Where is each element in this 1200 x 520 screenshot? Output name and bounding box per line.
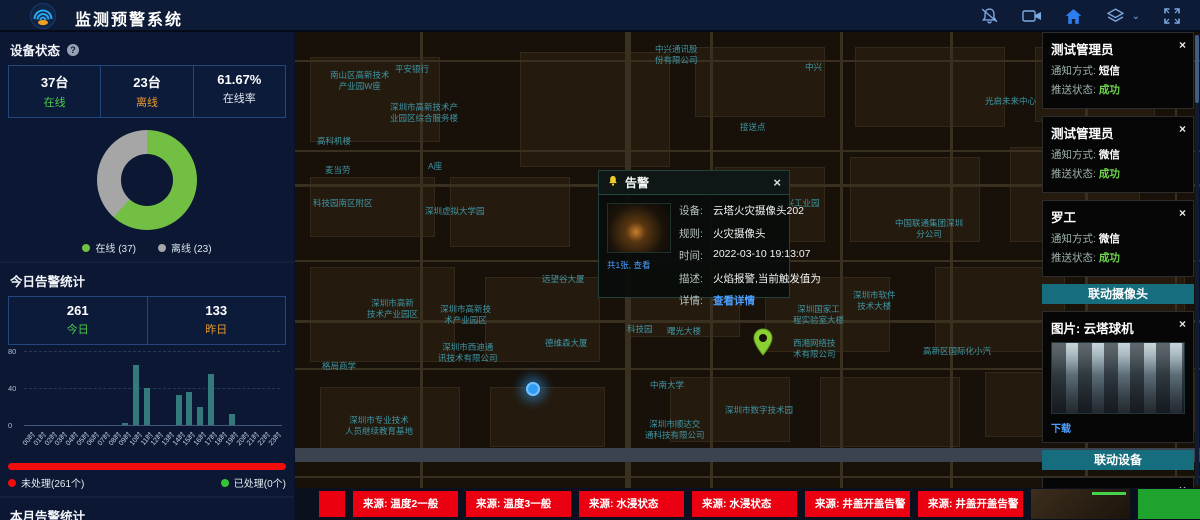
legend-handled: 已处理(0个) <box>221 475 286 490</box>
close-icon[interactable]: × <box>1179 38 1186 52</box>
left-sidebar: 设备状态 ? 37台 在线 23台 离线 61.67% 在线率 在线 (37) … <box>0 32 295 520</box>
device-status-title: 设备状态 <box>10 40 60 59</box>
alert-source-tile[interactable]: 来源: 温度2一般 <box>353 491 458 517</box>
alert-source-tile[interactable]: 来源: 井盖开盖告警 <box>918 491 1023 517</box>
alert-popup: 告警 × 共1张, 查看 设备: 云塔火灾摄像头202 规则: 火灾摄像头 <box>598 170 790 298</box>
map-building <box>490 387 605 447</box>
field-value: 云塔火灾摄像头202 <box>713 203 804 218</box>
notification-row: 推送状态: 成功 <box>1051 166 1185 181</box>
chart-gridline <box>24 388 280 389</box>
month-alerts-title: 本月告警统计 <box>10 506 85 520</box>
stat-today-value: 261 <box>9 303 147 318</box>
monitoring-dashboard: 监测预警系统 ⌄ 设备状态 ? <box>0 0 1200 520</box>
stat-yesterday-label: 昨日 <box>148 321 286 337</box>
stat-online-rate: 61.67% 在线率 <box>193 66 285 117</box>
help-icon[interactable]: ? <box>67 44 79 56</box>
today-alerts-stats: 261 今日 133 昨日 <box>8 296 286 345</box>
linked-device-banner: 联动设备 <box>1042 450 1194 470</box>
map-label: 中国联通集团深圳 分公司 <box>895 218 963 240</box>
alert-snapshot-image[interactable] <box>607 203 671 253</box>
field-label: 描述: <box>679 271 713 286</box>
stat-online: 37台 在线 <box>9 66 100 117</box>
chart-bar <box>197 407 203 425</box>
camera-card-title: 图片: 云塔球机 <box>1051 318 1185 337</box>
alert-progress-bar <box>8 463 286 470</box>
map-label: 德维森大厦 <box>545 338 588 349</box>
close-icon[interactable]: × <box>1179 317 1186 331</box>
row-value-success: 成功 <box>1099 252 1120 264</box>
alert-progress-legend: 未处理(261个) 已处理(0个) <box>8 475 286 490</box>
map-label: 高科机楼 <box>317 136 351 147</box>
month-alerts-header: 本月告警统计 <box>0 496 294 520</box>
map-label: 深圳市顺达交 通科技有限公司 <box>645 419 705 441</box>
download-link[interactable]: 下载 <box>1051 420 1185 435</box>
legend-handled-dot <box>221 479 229 487</box>
row-value: 短信 <box>1099 65 1120 77</box>
linked-camera-card: × 图片: 云塔球机 下载 <box>1042 311 1194 443</box>
bottom-alert-bar: 来源: 温度2一般来源: 温度3一般来源: 水浸状态来源: 水浸状态来源: 井盖… <box>295 488 1200 520</box>
notification-name: 测试管理员 <box>1051 123 1185 142</box>
notification-row: 推送状态: 成功 <box>1051 250 1185 265</box>
notification-row: 通知方式: 微信 <box>1051 147 1185 162</box>
alert-thumb-block: 共1张, 查看 <box>607 203 671 316</box>
map-label: 远望谷大厦 <box>542 274 585 285</box>
layers-icon[interactable] <box>1106 6 1126 26</box>
fullscreen-icon[interactable] <box>1162 6 1182 26</box>
today-alerts-header: 今日告警统计 <box>0 261 294 296</box>
map-label: 深圳市高新 技术产业园区 <box>367 298 418 320</box>
alert-green-thumbnail[interactable] <box>1138 489 1200 519</box>
notification-card: × 测试管理员 通知方式: 短信 推送状态: 成功 <box>1042 32 1194 109</box>
field-value: 火灾摄像头 <box>713 226 766 241</box>
row-value: 微信 <box>1099 149 1120 161</box>
map-label: A座 <box>428 161 442 172</box>
legend-unhandled: 未处理(261个) <box>8 475 84 490</box>
row-label: 推送状态: <box>1051 84 1096 96</box>
close-icon[interactable]: × <box>1179 122 1186 136</box>
map-label: 高新区国际化小汽 <box>923 346 991 357</box>
row-label: 通知方式: <box>1051 65 1096 77</box>
video-camera-icon[interactable] <box>1022 6 1042 26</box>
alert-popup-body: 共1张, 查看 设备: 云塔火灾摄像头202 规则: 火灾摄像头 时间: 202… <box>599 195 789 320</box>
chart-bar <box>176 395 182 425</box>
field-value: 2022-03-10 19:13:07 <box>713 248 811 263</box>
chart-bar <box>186 392 192 425</box>
map-label: 格局商学 <box>322 361 356 372</box>
notification-card: × 罗工 通知方式: 微信 推送状态: 成功 <box>1042 200 1194 277</box>
popup-close-icon[interactable]: × <box>773 175 781 190</box>
device-donut-chart <box>97 130 197 230</box>
field-value: 火焰报警,当前触发值为 <box>713 271 821 286</box>
chart-ytick: 80 <box>8 347 16 356</box>
notification-row: 推送状态: 成功 <box>1051 82 1185 97</box>
map-label: 深圳市高新技 术产业园区 <box>440 304 491 326</box>
stat-yesterday-value: 133 <box>148 303 286 318</box>
row-value-success: 成功 <box>1099 168 1120 180</box>
alert-field-desc: 描述: 火焰报警,当前触发值为 <box>679 271 821 286</box>
device-status-stats: 37台 在线 23台 离线 61.67% 在线率 <box>8 65 286 118</box>
notification-card: × 测试管理员 通知方式: 微信 推送状态: 成功 <box>1042 116 1194 193</box>
donut-hole <box>121 154 173 206</box>
scrollbar-track <box>1195 35 1199 485</box>
chart-bar <box>122 423 128 425</box>
notification-mute-icon[interactable] <box>980 6 1000 26</box>
field-label: 详情: <box>679 293 713 308</box>
map-label: 南山区高新技术 产业园W座 <box>330 70 390 92</box>
alert-source-tile[interactable]: 来源: 温度3一般 <box>466 491 571 517</box>
map-label: 深圳市数字技术园 <box>725 405 793 416</box>
notification-name: 罗工 <box>1051 207 1185 226</box>
linked-camera-banner: 联动摄像头 <box>1042 284 1194 304</box>
donut-legend: 在线 (37) 离线 (23) <box>0 240 294 255</box>
row-value: 微信 <box>1099 233 1120 245</box>
stat-offline: 23台 离线 <box>100 66 192 117</box>
page-title: 监测预警系统 <box>75 6 183 30</box>
camera-photo[interactable] <box>1051 342 1185 414</box>
map-device-dot[interactable] <box>526 382 540 396</box>
field-label: 时间: <box>679 248 713 263</box>
home-icon[interactable] <box>1064 6 1084 26</box>
stat-online-value: 37台 <box>9 72 100 91</box>
stat-today-label: 今日 <box>9 321 147 337</box>
chart-bar <box>133 365 139 425</box>
stat-yesterday: 133 昨日 <box>147 297 286 344</box>
map-label: 科技园南区附区 <box>313 198 373 209</box>
legend-online-dot <box>82 244 90 252</box>
map-building <box>695 47 825 117</box>
legend-handled-label: 已处理(0个) <box>234 475 286 490</box>
map-label: 深圳市高新技术产 业园区综合服务楼 <box>390 102 458 124</box>
map-label: 深圳虚拟大学园 <box>425 206 485 217</box>
alert-field-rule: 规则: 火灾摄像头 <box>679 226 821 241</box>
field-label: 设备: <box>679 203 713 218</box>
alert-popup-title: 告警 <box>625 174 773 191</box>
alert-source-tile[interactable]: 来源: 水浸状态 <box>692 491 797 517</box>
app-logo-icon <box>30 3 56 29</box>
legend-online: 在线 (37) <box>82 240 136 255</box>
alert-field-detail: 详情: 查看详情 <box>679 293 821 308</box>
chart-gridline <box>24 351 280 352</box>
alert-camera-thumbnail[interactable] <box>1031 489 1130 519</box>
map-label: 西湘网络技 术有限公司 <box>793 338 836 360</box>
top-header: 监测预警系统 ⌄ <box>0 0 1200 32</box>
map-building <box>855 47 1005 127</box>
chart-ytick: 0 <box>8 421 12 430</box>
map-label: 接送点 <box>740 122 766 133</box>
stat-offline-value: 23台 <box>101 72 192 91</box>
field-label: 规则: <box>679 226 713 241</box>
row-label: 推送状态: <box>1051 252 1096 264</box>
alert-popup-header: 告警 × <box>599 171 789 195</box>
row-label: 推送状态: <box>1051 168 1096 180</box>
alert-field-time: 时间: 2022-03-10 19:13:07 <box>679 248 821 263</box>
legend-online-label: 在线 (37) <box>95 240 136 255</box>
row-label: 通知方式: <box>1051 233 1096 245</box>
hourly-alert-chart: 0408000时01时02时03时04时05时06时07时08时09时10时11… <box>8 347 287 453</box>
alarm-bell-icon <box>607 174 619 192</box>
header-toolbar: ⌄ <box>980 4 1182 28</box>
map-label: 科技园 <box>627 324 653 335</box>
legend-unhandled-dot <box>8 479 16 487</box>
map-label: 深圳市专业技术 人员继续教育基地 <box>345 415 413 437</box>
map-label: 中兴通讯股 份有限公司 <box>655 44 698 66</box>
map-label: 中兴 <box>805 62 822 73</box>
notification-name: 测试管理员 <box>1051 39 1185 58</box>
chart-bar <box>229 414 235 425</box>
alert-source-tile[interactable]: 来源: 井盖开盖告警 <box>805 491 910 517</box>
alert-source-tile[interactable]: 来源: 水浸状态 <box>579 491 684 517</box>
stat-offline-label: 离线 <box>101 94 192 110</box>
stat-online-rate-label: 在线率 <box>194 90 285 106</box>
right-panel: × 测试管理员 通知方式: 短信 推送状态: 成功 × 测试管理员 通知方式: … <box>1040 32 1196 488</box>
close-icon[interactable]: × <box>1179 206 1186 220</box>
map-label: 深圳市软件 技术大楼 <box>853 290 896 312</box>
row-label: 通知方式: <box>1051 149 1096 161</box>
legend-offline-label: 离线 (23) <box>171 240 212 255</box>
row-value-success: 成功 <box>1099 84 1120 96</box>
chart-bar <box>144 388 150 425</box>
map-label: 深圳市西迪通 讯技术有限公司 <box>438 342 498 364</box>
stat-today: 261 今日 <box>9 297 147 344</box>
alert-tile-partial[interactable] <box>319 491 345 517</box>
map-label: 曙光大楼 <box>667 326 701 337</box>
map-location-pin[interactable] <box>752 328 774 356</box>
scrollbar-thumb[interactable] <box>1195 35 1199 103</box>
stat-online-label: 在线 <box>9 94 100 110</box>
chart-bar <box>208 374 214 425</box>
chart-ytick: 40 <box>8 384 16 393</box>
map-label: 光启未来中心 <box>985 96 1036 107</box>
notification-row: 通知方式: 微信 <box>1051 231 1185 246</box>
legend-offline-dot <box>158 244 166 252</box>
legend-offline: 离线 (23) <box>158 240 212 255</box>
device-status-header: 设备状态 ? <box>0 32 294 65</box>
map-label: 中南大学 <box>650 380 684 391</box>
map-label: 麦当劳 <box>325 165 351 176</box>
view-detail-link[interactable]: 查看详情 <box>713 293 755 308</box>
alert-field-device: 设备: 云塔火灾摄像头202 <box>679 203 821 218</box>
stat-online-rate-value: 61.67% <box>194 72 285 87</box>
today-alerts-title: 今日告警统计 <box>10 271 85 290</box>
alert-fields: 设备: 云塔火灾摄像头202 规则: 火灾摄像头 时间: 2022-03-10 … <box>679 203 821 316</box>
map-label: 平安银行 <box>395 64 429 75</box>
legend-unhandled-label: 未处理(261个) <box>21 475 84 490</box>
notification-row: 通知方式: 短信 <box>1051 63 1185 78</box>
alert-thumb-caption[interactable]: 共1张, 查看 <box>607 259 671 271</box>
chevron-down-icon[interactable]: ⌄ <box>1132 11 1140 22</box>
linked-device-card: × 云塔307声光报警设备 设备编码: ffffff100001ab6c 调用服… <box>1042 477 1194 488</box>
